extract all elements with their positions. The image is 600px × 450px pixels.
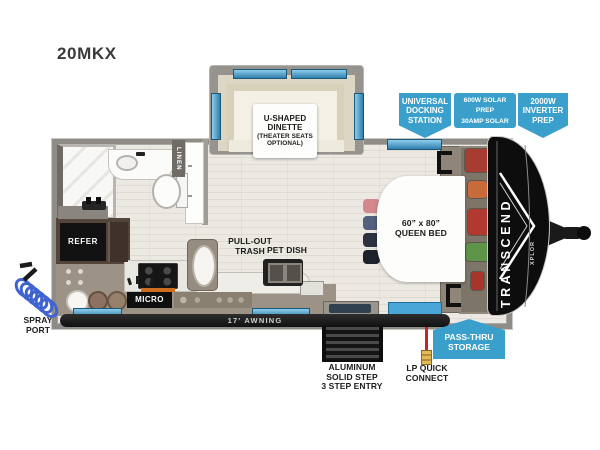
steps-label: ALUMINUM SOLID STEP 3 STEP ENTRY bbox=[308, 363, 396, 392]
cap-chevron-graphic bbox=[488, 137, 549, 315]
dinette-window-right bbox=[354, 93, 364, 140]
counter-end-cabinet bbox=[300, 281, 324, 296]
corner-bracket-icon bbox=[437, 151, 452, 174]
callout-inverter-prep: 2000W INVERTER PREP bbox=[518, 93, 568, 138]
brand-series-label: XPLOR bbox=[530, 229, 536, 265]
callout-solar-prep: 600W SOLAR PREP 30AMP SOLAR CONTROL PREP bbox=[454, 93, 516, 128]
pet-dish-label: PET DISH bbox=[258, 246, 316, 256]
refer-label: REFER bbox=[68, 238, 98, 247]
refrigerator: REFER bbox=[60, 223, 106, 261]
dinette-window-top-right bbox=[291, 69, 347, 79]
dinette-option-label: (THEATER SEATS OPTIONAL) bbox=[257, 133, 313, 147]
dinette-label: U-SHAPED DINETTE bbox=[264, 115, 307, 133]
cabinet-knob bbox=[78, 269, 83, 274]
micro-label: MICRO bbox=[135, 296, 164, 305]
bathroom-faucet-icon bbox=[136, 152, 145, 156]
brand-model-label: TRANSCEND bbox=[499, 144, 513, 308]
awning-bar: 17' AWNING bbox=[60, 314, 450, 327]
linen-closet: LINEN bbox=[172, 140, 185, 177]
pet-dish-bowl bbox=[268, 263, 285, 283]
awning-label: 17' AWNING bbox=[228, 316, 283, 325]
bed-label: 60” x 80” QUEEN BED bbox=[395, 219, 447, 238]
microwave: MICRO bbox=[127, 292, 172, 308]
hitch-coupler bbox=[577, 226, 591, 240]
kitchen-fixture-strip bbox=[174, 292, 252, 308]
lp-connector bbox=[421, 350, 432, 365]
spray-port-hose-icon bbox=[10, 258, 64, 320]
callout-universal-docking: UNIVERSAL DOCKING STATION bbox=[399, 93, 451, 138]
trash-can bbox=[192, 245, 216, 287]
pet-dish-bowl bbox=[285, 263, 302, 283]
stored-clothing bbox=[468, 181, 487, 198]
floorplan-canvas: 20MKX U-SHAPED DINETTE (THEATER SEATS OP… bbox=[0, 0, 600, 450]
bathroom-sink bbox=[116, 155, 138, 171]
queen-bed: 60” x 80” QUEEN BED bbox=[377, 176, 465, 282]
cabinet-handle bbox=[188, 165, 192, 167]
refrigerator-side-cabinet bbox=[108, 222, 128, 262]
dinette-window-top-left bbox=[233, 69, 287, 79]
cabinet-knob bbox=[66, 269, 71, 274]
front-cap: TRANSCEND XPLOR bbox=[487, 136, 550, 316]
dinette-table: U-SHAPED DINETTE (THEATER SEATS OPTIONAL… bbox=[253, 104, 317, 158]
kitchen-faucet-icon bbox=[136, 276, 139, 284]
entry-steps bbox=[322, 327, 383, 362]
lp-line bbox=[425, 327, 428, 352]
cabinet-knob bbox=[78, 280, 83, 285]
shower-knob-icon bbox=[86, 197, 91, 204]
window-bedroom bbox=[387, 139, 442, 150]
linen-label: LINEN bbox=[172, 140, 185, 177]
lp-label: LP QUICK CONNECT bbox=[393, 364, 461, 383]
shower-knob-icon bbox=[96, 197, 101, 204]
cabinet-knob bbox=[66, 280, 71, 285]
page-title: 20MKX bbox=[57, 44, 117, 64]
corner-bracket-icon bbox=[446, 284, 461, 307]
cabinet-handle bbox=[188, 195, 192, 197]
dinette-window-left bbox=[211, 93, 221, 140]
stored-clothing bbox=[471, 272, 484, 290]
toilet bbox=[152, 174, 181, 209]
cooktop bbox=[138, 263, 178, 289]
entry-door-window bbox=[329, 304, 371, 313]
